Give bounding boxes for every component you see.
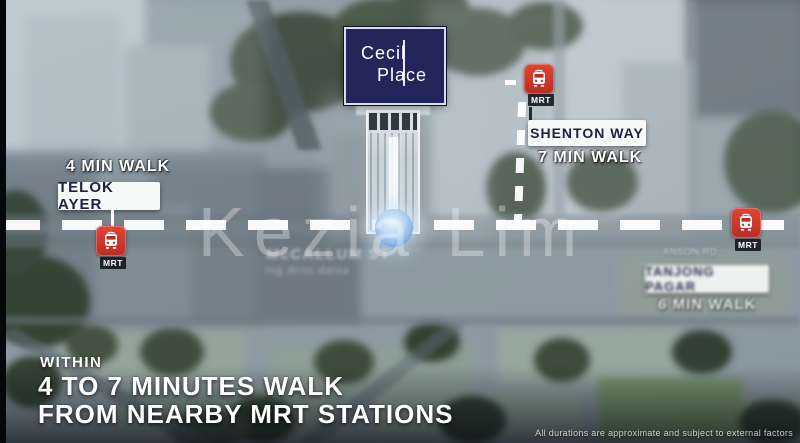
shenton-way-station-box: SHENTON WAY xyxy=(528,120,646,146)
headline-within: WITHIN xyxy=(40,354,453,371)
telok-ayer-mrt-icon xyxy=(96,226,126,256)
telok-ayer-mrt-badge: MRT xyxy=(100,257,126,269)
shenton-way-pointer xyxy=(529,107,532,121)
tanjong-pagar-station-box: TANJONG PAGAR xyxy=(645,265,769,293)
headline-block: WITHIN 4 TO 7 MINUTES WALK FROM NEARBY M… xyxy=(38,354,453,429)
logo-line1: Cecil xyxy=(361,43,406,64)
watermark: Kezia Lim xyxy=(198,192,586,272)
cecil-place-logo: Cecil Place xyxy=(344,27,446,105)
tanjong-pagar-mrt-icon xyxy=(731,208,761,238)
promo-slide: Cecil Place 4 MIN WALK TELOK AYER MRT M xyxy=(0,0,800,443)
connector-dash xyxy=(505,80,516,85)
disclaimer-text: All durations are approximate and subjec… xyxy=(535,428,793,438)
shenton-way-mrt-icon xyxy=(524,64,554,94)
telok-ayer-station-box: TELOK AYER xyxy=(58,182,160,210)
shenton-way-mrt-badge: MRT xyxy=(528,94,554,106)
tower-cap xyxy=(369,113,417,130)
shenton-way-walk-label: 7 MIN WALK xyxy=(538,149,642,167)
train-icon xyxy=(100,230,122,252)
telok-ayer-walk-label: 4 MIN WALK xyxy=(66,158,170,176)
train-icon xyxy=(528,68,550,90)
headline-line2: 4 TO 7 MINUTES WALK xyxy=(38,373,453,401)
tanjong-pagar-mrt-badge: MRT xyxy=(735,239,761,251)
tanjong-pagar-walk-label: 6 MIN WALK xyxy=(658,296,756,313)
anson-road-label: ANSON RD xyxy=(663,247,717,258)
logo-tall-stroke xyxy=(403,40,405,86)
headline-line3: FROM NEARBY MRT STATIONS xyxy=(38,401,453,429)
train-icon xyxy=(735,212,757,234)
left-edge-bar xyxy=(0,0,6,443)
